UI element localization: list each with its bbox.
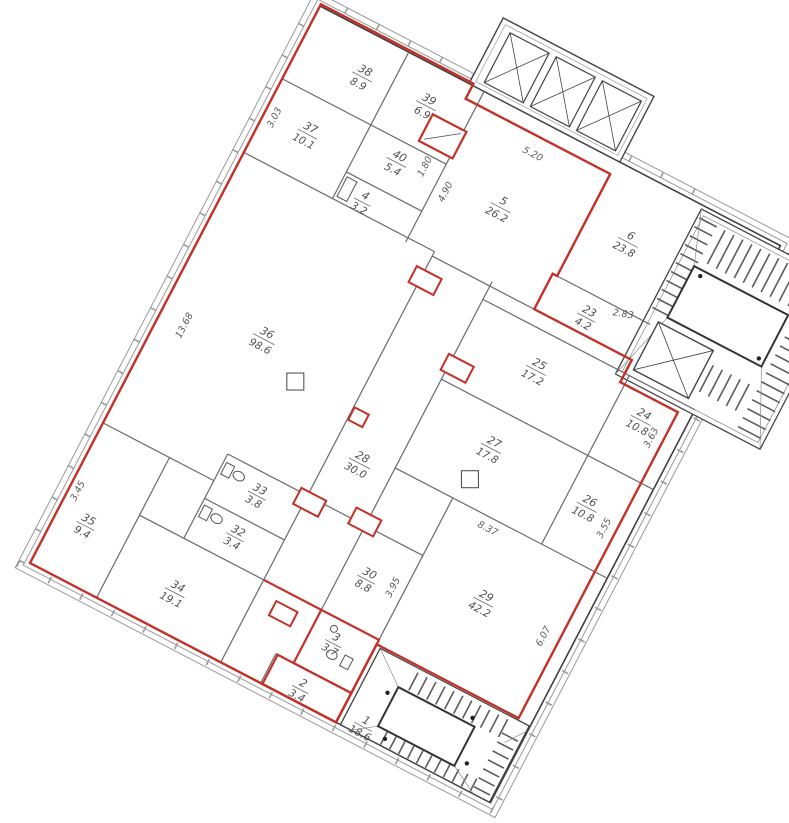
column <box>461 471 478 488</box>
column <box>287 373 304 390</box>
floor-plan-page: 388.9 396.9 3710.1 405.4 43.2 526.2 623.… <box>0 0 789 823</box>
floor-plan-drawing: 388.9 396.9 3710.1 405.4 43.2 526.2 623.… <box>0 0 789 823</box>
